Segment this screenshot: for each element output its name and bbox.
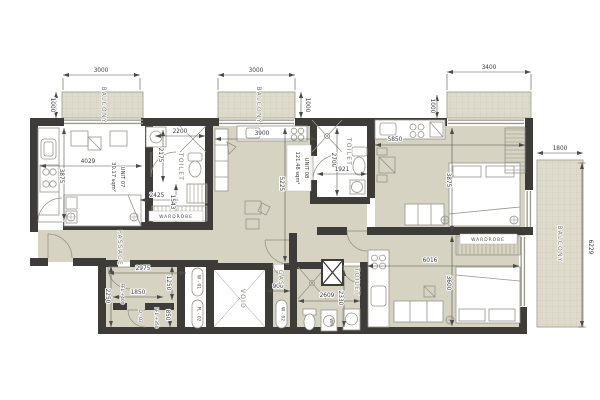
- gas-label: GAS: [277, 270, 284, 286]
- dim-2250: 2250: [104, 289, 110, 304]
- balcony-side-label: BALCONY: [556, 225, 563, 262]
- dim-3400: 3400: [482, 65, 497, 71]
- unit07-area: 30.17 sqm²: [110, 162, 116, 192]
- dim-2425: 2425: [150, 193, 165, 199]
- d03-tag: D - 03: [137, 309, 143, 323]
- ffl-350-label: FFL +350: [153, 308, 159, 329]
- dim-1850: 1850: [131, 290, 146, 296]
- svg-text:W - 02: W - 02: [280, 307, 286, 321]
- dim-1800: 1800: [553, 146, 568, 152]
- unit07-name: UNIT 07: [119, 167, 125, 188]
- dim-850: 850: [164, 309, 170, 320]
- dim-6016: 6016: [423, 258, 438, 264]
- dim-4029: 4029: [81, 159, 96, 165]
- dim-1000-right: 1000: [429, 99, 435, 114]
- dim-2330: 2330: [337, 291, 343, 306]
- toilet-lower-label: TOILET: [353, 267, 360, 296]
- dim-2700: 2700: [330, 153, 336, 168]
- dim-3875-u07: 3875: [58, 169, 64, 184]
- dim-2609: 2609: [320, 293, 335, 299]
- dim-3600: 3600: [445, 276, 451, 291]
- dim-3000-mid: 3000: [249, 68, 264, 74]
- dim-1250: 1250: [165, 276, 171, 291]
- balcony-mid-label: BALCONY: [255, 86, 262, 123]
- passage-label: PASSAGE: [116, 230, 123, 266]
- unit08-area: 121.48 sqm²: [294, 152, 300, 185]
- toilet-u08-label: TOILET: [345, 137, 352, 166]
- dim-1000-left: 1000: [49, 98, 55, 113]
- void-label: VOID: [239, 289, 246, 309]
- unit08-name: UNIT 08: [303, 158, 309, 179]
- dim-2200: 2200: [173, 129, 188, 135]
- duct-shaft: [322, 260, 343, 285]
- dim-3875-rt: 3875: [445, 173, 451, 188]
- w02-tag: W - 02: [276, 300, 287, 328]
- fl02-tag: FL - 02: [192, 300, 203, 328]
- dim-2175: 2175: [157, 148, 163, 163]
- w01-tag: W - 01: [192, 268, 203, 296]
- dim-6229: 6229: [587, 240, 593, 255]
- dim-3000-left: 3000: [94, 68, 109, 74]
- dim-1543: 1543: [169, 195, 175, 210]
- balcony-left-label: BALCONY: [100, 86, 107, 123]
- dim-1000-mid: 1000: [304, 98, 310, 113]
- dim-2975: 2975: [136, 266, 151, 272]
- wardrobe-u07-label: WARDROBE: [159, 214, 193, 220]
- wardrobe-bedroom-label: WARDROBE: [471, 237, 505, 243]
- wm-label: WM: [329, 318, 334, 326]
- dim-5850: 5850: [388, 137, 403, 143]
- dim-1921: 1921: [335, 167, 350, 173]
- toilet-u07-label: TOILET: [177, 152, 184, 181]
- svg-text:FL - 02: FL - 02: [196, 307, 202, 322]
- ffl-400-label: FFL +400: [119, 284, 125, 305]
- unit07-toilet-fixtures: [146, 126, 207, 221]
- dim-3900: 3900: [255, 131, 270, 137]
- svg-text:W - 01: W - 01: [196, 275, 202, 289]
- dim-5225: 5225: [278, 177, 284, 192]
- floor-plan: 3000 3000 3400 1000 1000 1000 1800 6229 …: [0, 0, 600, 400]
- balcony-top-right: [447, 92, 531, 118]
